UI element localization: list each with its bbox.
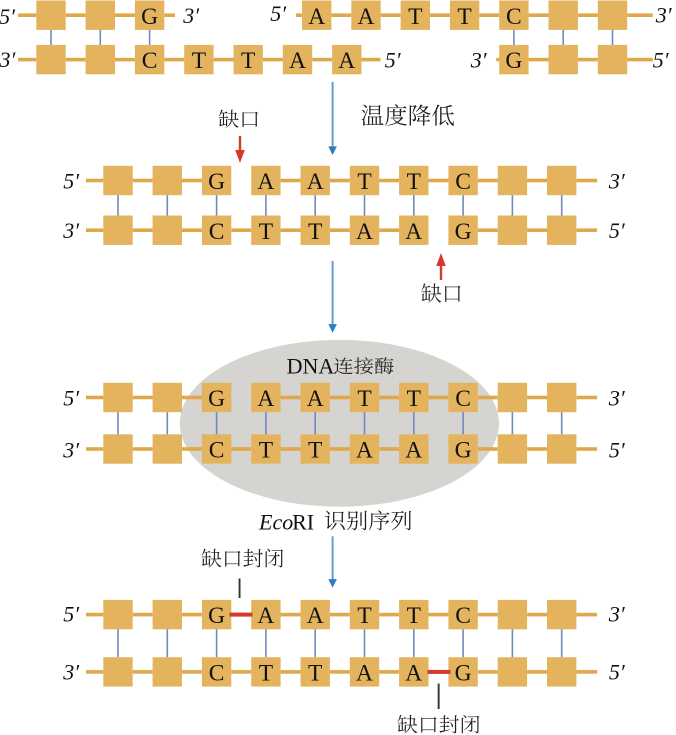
svg-text:C: C bbox=[209, 438, 225, 464]
svg-text:G: G bbox=[208, 386, 225, 412]
svg-text:3′: 3′ bbox=[655, 3, 673, 28]
svg-text:T: T bbox=[308, 661, 322, 687]
svg-text:T: T bbox=[259, 661, 273, 687]
svg-text:5′: 5′ bbox=[63, 386, 80, 411]
svg-text:5′: 5′ bbox=[270, 1, 287, 26]
svg-text:T: T bbox=[407, 603, 421, 629]
svg-text:C: C bbox=[142, 48, 158, 74]
svg-text:C: C bbox=[455, 386, 471, 412]
svg-text:G: G bbox=[455, 219, 472, 245]
svg-text:3′: 3′ bbox=[62, 438, 80, 463]
svg-text:T: T bbox=[407, 169, 421, 195]
svg-text:A: A bbox=[289, 48, 306, 74]
svg-text:3′: 3′ bbox=[0, 47, 17, 72]
svg-text:T: T bbox=[308, 438, 322, 464]
svg-text:A: A bbox=[405, 661, 422, 687]
svg-text:5′: 5′ bbox=[63, 168, 80, 193]
svg-text:C: C bbox=[209, 219, 225, 245]
svg-text:A: A bbox=[356, 661, 373, 687]
svg-text:A: A bbox=[308, 4, 325, 30]
svg-text:Eco: Eco bbox=[258, 510, 293, 535]
svg-text:3′: 3′ bbox=[470, 47, 488, 72]
svg-text:A: A bbox=[257, 386, 274, 412]
svg-text:G: G bbox=[141, 4, 158, 30]
svg-text:5′: 5′ bbox=[0, 4, 16, 29]
svg-text:G: G bbox=[208, 169, 225, 195]
svg-text:G: G bbox=[455, 661, 472, 687]
svg-text:A: A bbox=[356, 219, 373, 245]
svg-text:3′: 3′ bbox=[608, 168, 626, 193]
svg-text:T: T bbox=[407, 386, 421, 412]
svg-text:3′: 3′ bbox=[608, 601, 626, 626]
svg-text:C: C bbox=[506, 4, 522, 30]
svg-text:T: T bbox=[308, 219, 322, 245]
svg-text:T: T bbox=[241, 48, 255, 74]
svg-text:C: C bbox=[455, 603, 471, 629]
svg-text:DNA: DNA bbox=[287, 353, 335, 378]
svg-text:A: A bbox=[405, 219, 422, 245]
svg-text:T: T bbox=[357, 169, 371, 195]
svg-text:G: G bbox=[208, 603, 225, 629]
svg-text:T: T bbox=[457, 4, 471, 30]
svg-text:A: A bbox=[405, 438, 422, 464]
svg-text:A: A bbox=[307, 386, 324, 412]
svg-text:G: G bbox=[455, 438, 472, 464]
svg-text:A: A bbox=[307, 169, 324, 195]
svg-text:3′: 3′ bbox=[62, 218, 80, 243]
svg-text:G: G bbox=[505, 48, 522, 74]
svg-text:T: T bbox=[259, 438, 273, 464]
svg-text:5′: 5′ bbox=[653, 47, 670, 72]
svg-text:5′: 5′ bbox=[63, 601, 80, 626]
svg-text:A: A bbox=[356, 438, 373, 464]
svg-text:3′: 3′ bbox=[608, 386, 626, 411]
svg-text:T: T bbox=[192, 48, 206, 74]
svg-text:C: C bbox=[455, 169, 471, 195]
svg-text:5′: 5′ bbox=[609, 660, 626, 685]
svg-text:T: T bbox=[259, 219, 273, 245]
svg-text:5′: 5′ bbox=[609, 438, 626, 463]
svg-text:A: A bbox=[257, 169, 274, 195]
svg-text:T: T bbox=[408, 4, 422, 30]
svg-text:A: A bbox=[257, 603, 274, 629]
svg-text:A: A bbox=[338, 48, 355, 74]
svg-text:T: T bbox=[357, 603, 371, 629]
svg-text:3′: 3′ bbox=[62, 660, 80, 685]
svg-text:A: A bbox=[307, 603, 324, 629]
svg-text:T: T bbox=[357, 386, 371, 412]
svg-text:5′: 5′ bbox=[609, 218, 626, 243]
svg-text:5′: 5′ bbox=[385, 48, 402, 73]
svg-text:C: C bbox=[209, 661, 225, 687]
svg-text:RI: RI bbox=[292, 510, 314, 535]
svg-text:3′: 3′ bbox=[182, 3, 200, 28]
svg-text:A: A bbox=[358, 4, 375, 30]
